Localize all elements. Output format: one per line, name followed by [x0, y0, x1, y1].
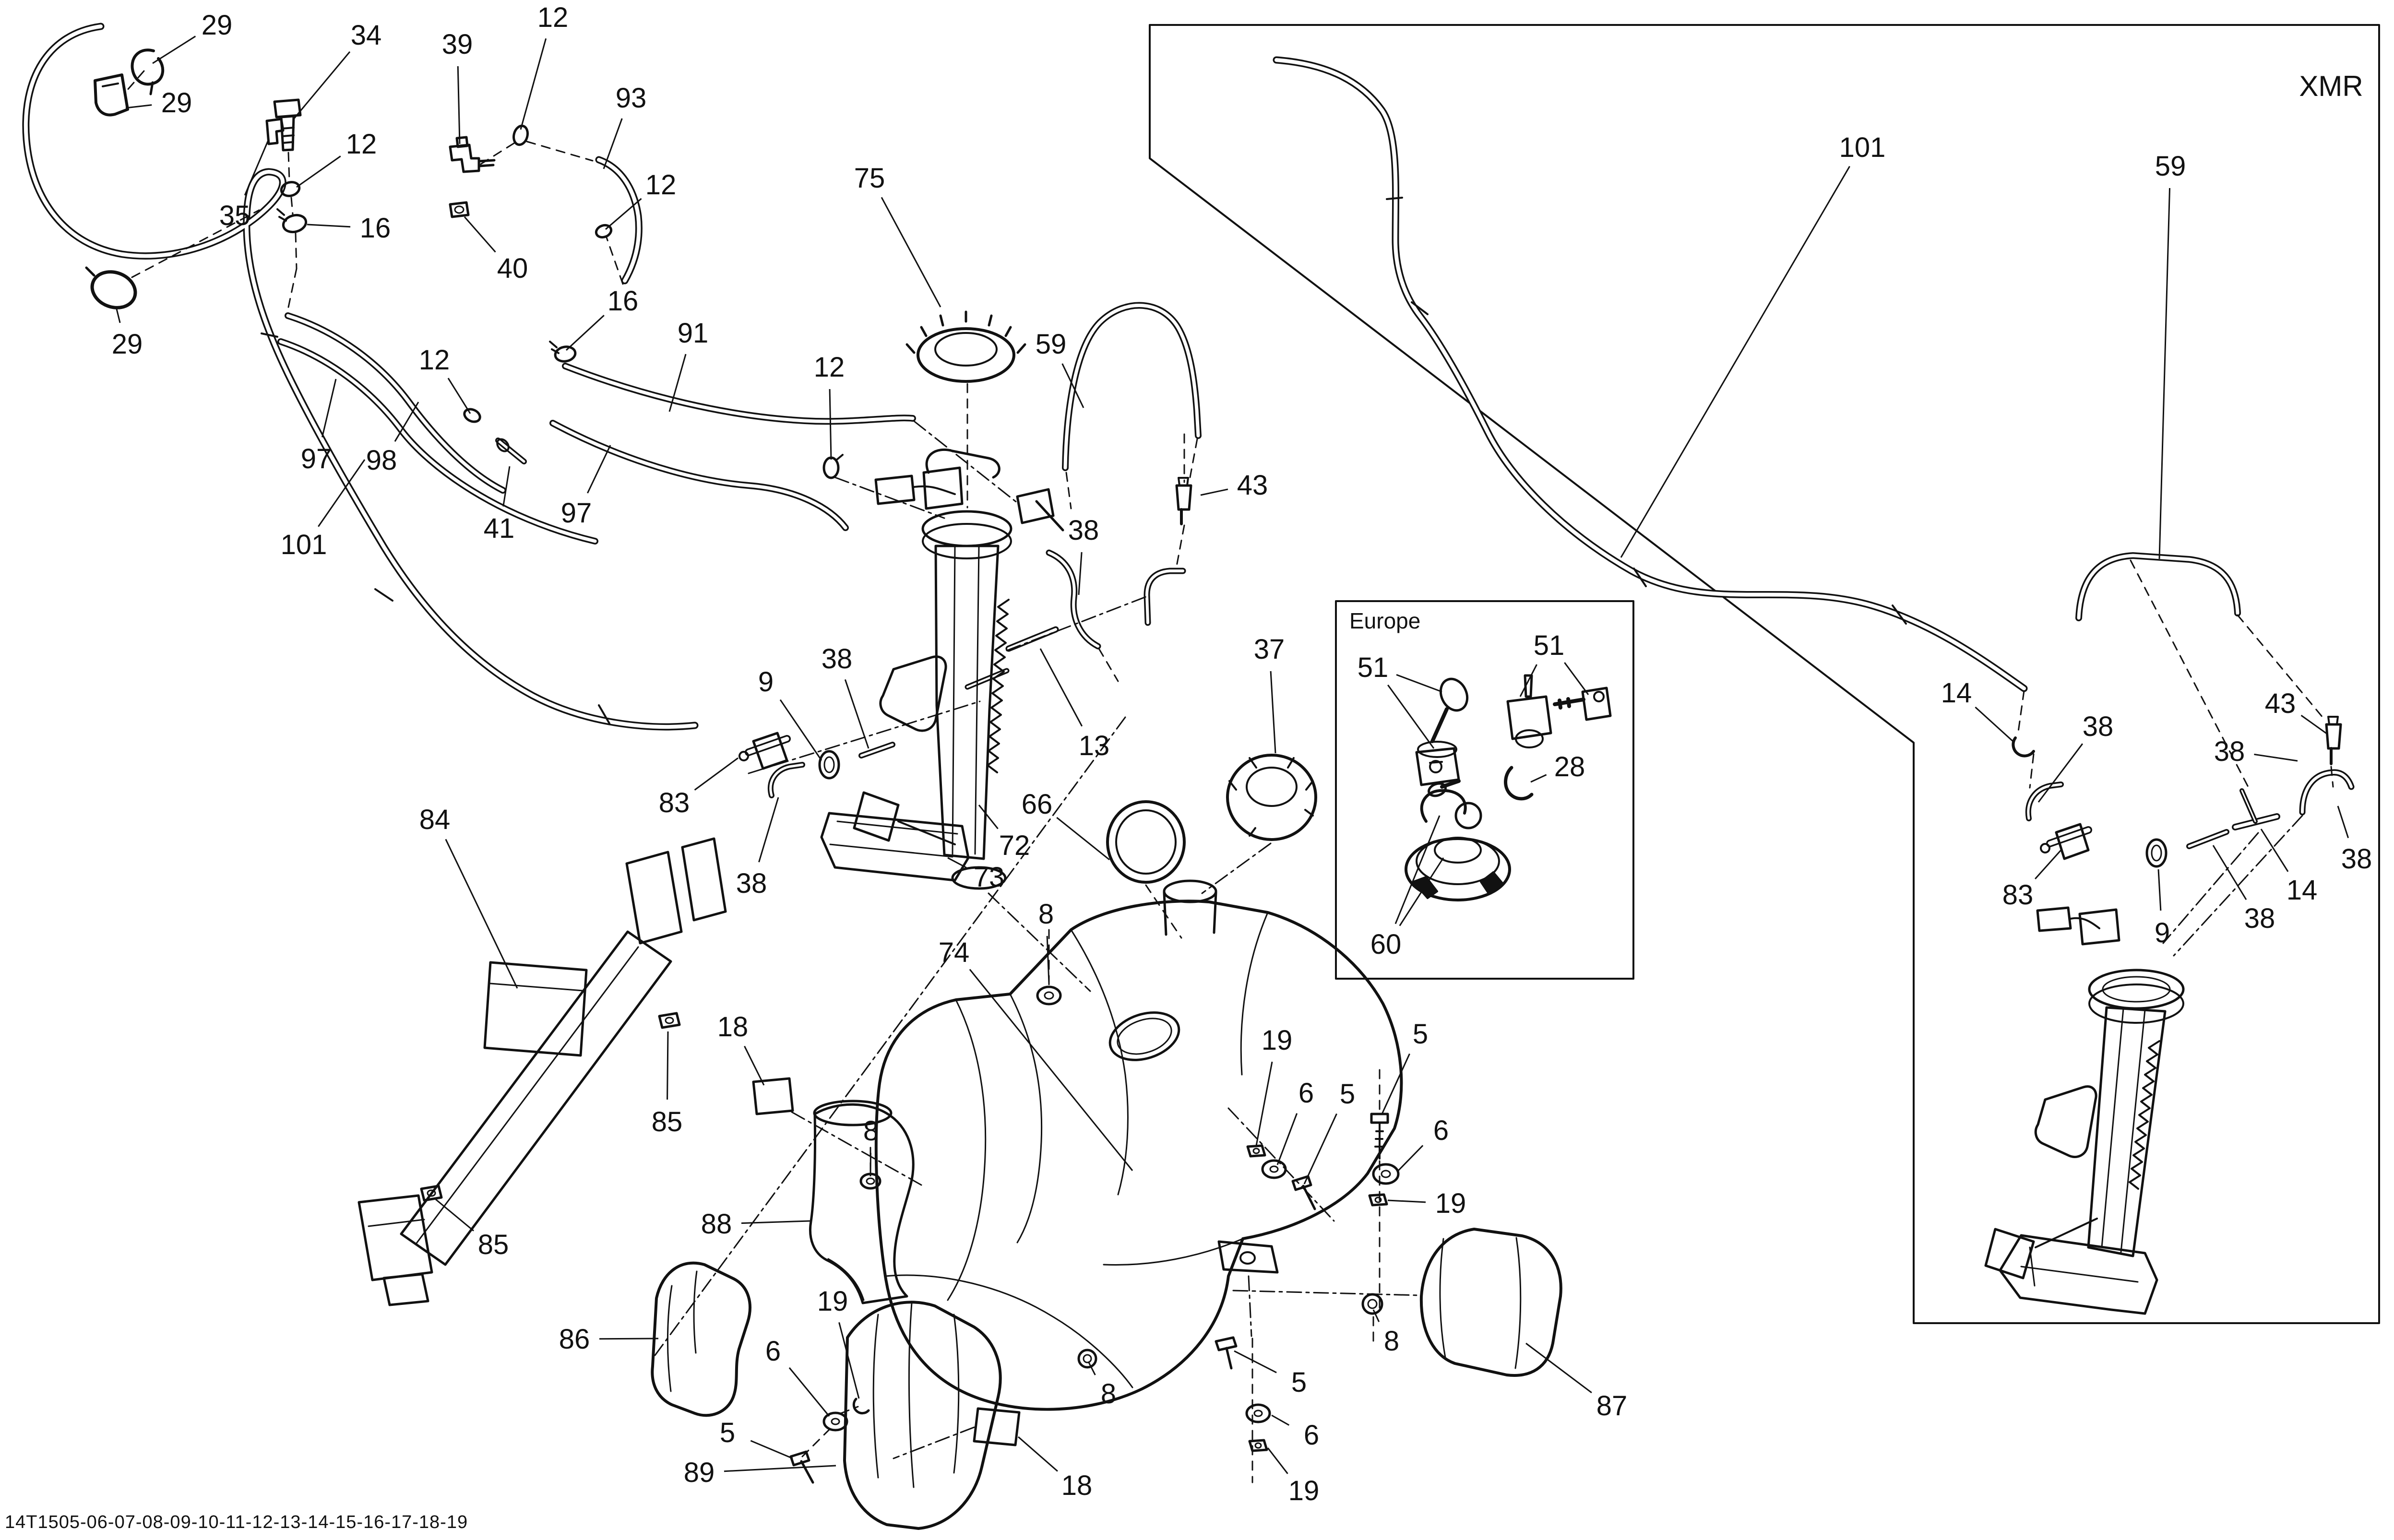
callout-86-leader: [599, 1339, 658, 1339]
sensor-83b-tip: [2041, 844, 2049, 853]
callout-18-label: 18: [717, 1011, 749, 1042]
callout-13-leader: [1040, 649, 1082, 726]
dash-39-12a: [481, 143, 514, 164]
callout-51-label: 51: [1358, 652, 1389, 683]
callout-16-label: 16: [360, 213, 391, 244]
callout-59-leader: [2159, 188, 2170, 559]
washer-8a-in: [867, 1178, 874, 1184]
callout-6-leader: [789, 1368, 829, 1416]
tank-neck-top: [1164, 881, 1216, 902]
callout-97-leader: [587, 445, 610, 493]
callout-89-leader: [724, 1466, 836, 1471]
clip-29b-inner: [103, 83, 118, 86]
callout-66-leader: [1057, 817, 1109, 860]
callout-6-label: 6: [1304, 1420, 1319, 1451]
callout-93-leader: [604, 118, 622, 169]
bolt-5c-shank: [801, 1461, 813, 1482]
callout-6-label: 6: [1298, 1078, 1314, 1109]
europe-region-label: Europe: [1349, 608, 1420, 633]
callout-14-label: 14: [2287, 875, 2318, 906]
tank-hole-inner: [1113, 1012, 1176, 1061]
callout-60-label: 60: [1370, 929, 1402, 960]
cap-37-notches: [1229, 758, 1313, 836]
bracket-84-plate1: [627, 852, 681, 943]
callout-12-label: 12: [419, 344, 450, 376]
callout-34-leader: [294, 52, 350, 119]
fitting-39: [450, 145, 479, 172]
tank-hole-outer: [1104, 1004, 1185, 1068]
rp-connector: [2080, 910, 2119, 944]
clip-35: [267, 119, 283, 144]
callout-9-leader: [2158, 869, 2161, 911]
callout-85-leader: [436, 1199, 474, 1231]
callout-8-label: 8: [863, 1115, 879, 1147]
bolt-5b-shank: [1375, 1123, 1383, 1159]
shield-86-l1: [667, 1286, 672, 1391]
callout-38-leader: [1079, 552, 1082, 595]
shield-89-l3: [954, 1315, 959, 1473]
callout-84-leader: [446, 839, 517, 988]
dash-59a-2: [1190, 439, 1197, 477]
callout-91-label: 91: [678, 318, 709, 349]
callout-29-label: 29: [202, 10, 233, 41]
ring-75-inner: [935, 333, 997, 366]
nut-85a-hole: [666, 1018, 673, 1023]
shield-89-l2: [909, 1303, 914, 1487]
callout-59-label: 59: [1036, 329, 1067, 360]
cover-87-l2: [1515, 1238, 1521, 1368]
callout-19-leader: [1256, 1062, 1272, 1146]
nut-19a-hole: [1253, 1149, 1259, 1153]
callout-51-leader: [1520, 664, 1537, 697]
callout-34-label: 34: [351, 20, 382, 51]
sled-73-lines: [830, 821, 957, 857]
clip-29c: [87, 266, 140, 313]
callout-38-leader: [2038, 744, 2083, 802]
callout-73-leader: [948, 858, 966, 868]
cap-60-ring: [1456, 803, 1481, 828]
bolt-5a-shank: [1303, 1186, 1315, 1209]
grommet-8d-in: [1084, 1355, 1091, 1362]
callout-74-leader: [970, 970, 1132, 1171]
callout-38-label: 38: [2341, 843, 2372, 875]
callout-29-label: 29: [112, 329, 143, 360]
grommet-8c-in: [1368, 1300, 1377, 1308]
callout-35-label: 35: [219, 200, 250, 231]
callout-75-leader: [881, 197, 941, 307]
callout-93-label: 93: [616, 83, 647, 114]
callout-43-label: 43: [2265, 688, 2296, 719]
callout-85-leader: [667, 1031, 668, 1100]
valve-43b: [2326, 724, 2341, 748]
sensor-83a-tip: [739, 752, 748, 760]
key-51a-blade: [1432, 709, 1447, 741]
callout-16-label: 16: [607, 285, 639, 317]
callout-14-label: 14: [1941, 677, 1972, 709]
callout-14-leader: [1975, 707, 2014, 743]
key-51b-blade: [1555, 699, 1584, 708]
callout-29-leader: [126, 105, 152, 108]
tank-facet-4: [948, 1000, 986, 1300]
bolt-5d-shank: [1227, 1348, 1231, 1368]
callout-16-leader: [566, 315, 604, 350]
bracket-84-boxlid: [490, 983, 583, 991]
grommet-9a-in: [824, 757, 834, 772]
callout-29-label: 29: [161, 87, 192, 118]
callout-8-label: 8: [1038, 899, 1054, 930]
callout-60-leader: [1395, 816, 1440, 924]
elbow-38-right: [2302, 772, 2351, 812]
nut-19b: [1370, 1195, 1387, 1205]
washer-6d: [1247, 1405, 1270, 1422]
callout-85-label: 85: [478, 1229, 509, 1260]
callout-89-label: 89: [684, 1457, 715, 1488]
stack-dash-1: [288, 153, 289, 180]
callout-51-label: 51: [1534, 630, 1565, 661]
callout-28-leader: [1531, 775, 1547, 782]
callout-43-leader: [1201, 489, 1228, 495]
parts-diagram-page: 2934123993291235121640299798124110116911…: [0, 0, 2394, 1540]
callout-38-label: 38: [2083, 711, 2114, 742]
dashdot-flange-down: [1249, 1276, 1251, 1336]
tank-facet-1: [1010, 994, 1042, 1243]
dashdot-87: [1233, 1291, 1419, 1295]
callout-9-label: 9: [2155, 917, 2170, 948]
callout-8-label: 8: [1384, 1326, 1399, 1357]
cap-37-inner: [1247, 768, 1297, 806]
dashdot-18b: [893, 1427, 974, 1458]
clamp-12d: [463, 407, 482, 424]
callout-19-leader: [1268, 1448, 1287, 1474]
callout-29-leader: [116, 307, 120, 323]
dashdot-12e-pump: [835, 477, 944, 518]
key-51b-hole: [1594, 692, 1604, 701]
pump-connector-2: [927, 450, 999, 477]
callout-38-label: 38: [736, 868, 767, 899]
callout-38-leader: [759, 797, 778, 862]
pump-body: [936, 546, 998, 859]
callout-37-leader: [1271, 671, 1275, 753]
pump-connector-1: [924, 468, 962, 509]
clamp-12e: [824, 458, 838, 478]
sticker-18b: [974, 1409, 1019, 1445]
callout-12-label: 12: [814, 352, 845, 383]
hose-91-core: [565, 366, 913, 421]
hose-59-right-core: [2079, 556, 2238, 618]
washer-6b-in: [1382, 1171, 1390, 1177]
pump-screw: [1036, 501, 1063, 530]
callout-12-label: 12: [346, 129, 377, 160]
hose-101-right-core: [1276, 60, 2024, 688]
callout-51-leader-2: [1564, 663, 1588, 695]
callout-5-label: 5: [720, 1417, 735, 1448]
rp-side-cyl: [2036, 1087, 2096, 1157]
callout-38-leader: [2254, 754, 2298, 761]
stack-dash-2: [291, 198, 293, 214]
clip-19c: [854, 1399, 869, 1413]
bolt-5c-head: [791, 1452, 809, 1465]
nut-85a: [659, 1013, 679, 1028]
sled-73: [822, 813, 968, 880]
callout-19-leader: [1388, 1200, 1426, 1202]
fitting-39-top: [457, 137, 467, 147]
callout-12-leader: [521, 38, 546, 130]
bracket-84-bar: [401, 932, 671, 1265]
washer-6c-in: [832, 1419, 839, 1424]
dash-59a-1: [1066, 473, 1071, 509]
clamp-40-hole: [455, 206, 464, 213]
callout-12-leader: [297, 156, 341, 187]
callout-87-label: 87: [1596, 1390, 1628, 1422]
nut-19a: [1248, 1146, 1265, 1156]
tube-38-right-core: [2189, 832, 2227, 846]
diagram-artwork-layer: [26, 25, 2379, 1528]
callout-18-leader: [744, 1046, 764, 1085]
duct-88: [810, 1104, 913, 1303]
callout-6-leader: [1397, 1146, 1423, 1172]
tube-38-mid-core: [861, 745, 893, 756]
washer-8b: [1037, 987, 1060, 1004]
dash-93-12b: [607, 237, 623, 284]
shield-89-l1: [873, 1315, 878, 1478]
grommet-9a: [820, 751, 839, 778]
washer-6c: [824, 1413, 847, 1430]
clip-28: [1506, 768, 1532, 799]
callout-73-label: 73: [974, 862, 1005, 893]
callout-72-leader: [979, 805, 998, 829]
callout-6-leader: [1272, 1415, 1289, 1425]
callout-19-label: 19: [1435, 1188, 1466, 1219]
clip-29a: [132, 50, 163, 84]
key-51a-head: [1436, 675, 1472, 715]
callout-74-label: 74: [939, 937, 970, 968]
callout-88-leader: [741, 1221, 810, 1223]
dash-12a-93: [527, 142, 593, 161]
callout-5-leader: [1304, 1114, 1337, 1184]
callout-5-leader: [1234, 1351, 1276, 1373]
callout-35-leader: [245, 139, 269, 195]
callout-19-label: 19: [1262, 1025, 1293, 1056]
washer-8b-in: [1045, 992, 1053, 999]
callout-38-label: 38: [1068, 515, 1099, 546]
callout-40-leader: [465, 217, 495, 252]
callout-101-label: 101: [1839, 132, 1886, 163]
callout-84-label: 84: [419, 804, 451, 835]
callout-51-leader-2: [1388, 685, 1434, 748]
callout-85-label: 85: [652, 1106, 683, 1137]
callout-83-leader: [695, 758, 738, 790]
callout-86-label: 86: [559, 1324, 590, 1355]
pump-wire: [914, 486, 955, 494]
tank-facet-5: [885, 1275, 1132, 1387]
valve-43a: [1177, 486, 1191, 509]
tank-outline: [876, 901, 1402, 1409]
clip-14a: [2013, 738, 2034, 756]
callout-88-label: 88: [701, 1208, 732, 1240]
washer-6d-in: [1254, 1410, 1262, 1416]
elbow-38-left-xmr: [2028, 784, 2061, 818]
dashdot-flange-axis: [1228, 1108, 1334, 1221]
callout-6-leader: [1277, 1114, 1297, 1165]
tube-13-core: [1009, 629, 1056, 649]
callout-12-leader: [830, 389, 831, 460]
washer-6a-in: [1270, 1166, 1278, 1172]
callout-18-leader: [1018, 1437, 1058, 1471]
pump-body-lines: [953, 547, 979, 854]
callout-101-leader: [1621, 166, 1850, 557]
y-fitting-branch-core: [2242, 791, 2255, 821]
grommet-9b: [2147, 840, 2166, 866]
shield-86-l2: [694, 1271, 697, 1353]
callout-66-label: 66: [1022, 789, 1053, 820]
callout-101-label: 101: [281, 529, 327, 560]
sheet-part-number: 14T1505-06-07-08-09-10-11-12-13-14-15-16…: [5, 1512, 468, 1532]
callout-83-label: 83: [2002, 879, 2034, 911]
bracket-84-plate2: [682, 839, 726, 920]
cap-60-mid: [1417, 838, 1499, 884]
clip-29b: [95, 75, 128, 115]
tank-flange: [1219, 1242, 1277, 1272]
callout-9-leader: [780, 700, 822, 760]
clamp-16b: [554, 345, 577, 363]
callout-43-leader: [2301, 715, 2327, 734]
callout-40-label: 40: [497, 253, 528, 284]
callout-6-label: 6: [765, 1336, 781, 1367]
callout-13-label: 13: [1079, 730, 1110, 761]
callout-97-label: 97: [561, 498, 592, 529]
fitting-34-b: [281, 116, 294, 150]
callout-37-label: 37: [1254, 634, 1285, 665]
nut-19d-hole: [1255, 1443, 1261, 1448]
grommet-9b-in: [2152, 845, 2161, 861]
clamp-40: [450, 202, 468, 217]
callout-83-leader: [2035, 850, 2061, 879]
tank-neck-r: [1214, 892, 1216, 933]
elbow-38-low: [771, 765, 802, 795]
callout-38-label: 38: [2244, 903, 2275, 934]
xmr-box-border: [1150, 25, 2379, 1323]
callout-39-label: 39: [442, 29, 473, 60]
xmr-region-label: XMR: [2299, 70, 2363, 102]
clamp-16a: [281, 213, 308, 234]
cover-87-l1: [1440, 1239, 1445, 1358]
gasket-66-outer: [1108, 802, 1184, 882]
callout-12-label: 12: [645, 169, 677, 201]
bracket-84-endline: [369, 1220, 424, 1226]
clamp-12e-tab: [837, 455, 843, 460]
callout-5-label: 5: [1340, 1078, 1355, 1110]
callout-97-label: 97: [301, 443, 332, 474]
callout-41-leader: [503, 466, 510, 507]
callout-43-label: 43: [1237, 470, 1268, 501]
hose-101-right: [1276, 60, 2024, 688]
dash-14a-elbow: [2030, 754, 2034, 788]
dash-43a-down: [1177, 525, 1184, 566]
callout-28-label: 28: [1554, 751, 1585, 782]
callout-38-leader: [845, 679, 869, 748]
callout-6-label: 6: [1433, 1115, 1449, 1146]
callout-5-leader: [1382, 1054, 1410, 1114]
callout-5-label: 5: [1291, 1367, 1307, 1398]
callout-19-label: 19: [817, 1286, 848, 1317]
rp-flange-in: [2103, 977, 2170, 1002]
callout-59-label: 59: [2155, 151, 2186, 182]
gasket-66-inner: [1116, 810, 1176, 874]
cap-60-top: [1435, 838, 1481, 863]
callout-51-leader: [1396, 675, 1442, 692]
callout-8-leader: [1047, 936, 1049, 983]
callout-29-leader: [153, 36, 195, 63]
cyl-51b: [1508, 697, 1551, 739]
callout-12-label: 12: [537, 2, 569, 33]
callout-75-label: 75: [854, 163, 885, 194]
callout-5-label: 5: [1413, 1019, 1428, 1050]
callout-72-label: 72: [999, 830, 1030, 861]
ring-75-outer: [918, 329, 1014, 381]
dash-38-13: [1099, 649, 1118, 681]
callout-87-leader: [1526, 1343, 1592, 1393]
callout-38-leader: [2338, 806, 2348, 838]
callout-5-leader: [750, 1441, 793, 1458]
tank-flange-hole: [1240, 1252, 1255, 1264]
rp-plug: [2037, 908, 2071, 931]
clip-29c-tab: [86, 268, 94, 275]
rp-wire: [2071, 918, 2099, 928]
hose-38-L-core: [1147, 571, 1183, 623]
callout-39-leader: [458, 66, 460, 144]
bolt-5a-head: [1293, 1176, 1311, 1190]
callout-97-leader: [322, 379, 336, 437]
tank-neck-l: [1164, 892, 1166, 935]
dashdot-91-pump: [914, 421, 1017, 503]
callout-38-label: 38: [2214, 736, 2245, 767]
callout-41-label: 41: [484, 513, 515, 544]
dash-101b-14a: [2018, 691, 2024, 735]
pump-bracket-top: [1017, 489, 1053, 523]
callout-38-label: 38: [822, 643, 853, 675]
callout-18-label: 18: [1061, 1470, 1093, 1501]
exploded-parts-diagram: 2934123993291235121640299798124110116911…: [0, 0, 2394, 1540]
bolt-5b-head: [1371, 1114, 1388, 1123]
stack-dash-4: [288, 269, 297, 309]
hose-59-center-core: [1065, 306, 1198, 468]
sticker-18a: [753, 1078, 793, 1114]
callout-83-label: 83: [659, 787, 690, 818]
washer-6b: [1373, 1164, 1398, 1184]
callout-16-leader: [307, 225, 350, 227]
callout-9-label: 9: [758, 666, 774, 698]
stack-dash-3: [296, 233, 297, 269]
callout-98-label: 98: [366, 445, 397, 476]
grommet-8d: [1079, 1350, 1096, 1367]
callout-8-label: 8: [1101, 1378, 1116, 1410]
bracket-84-barline: [416, 947, 638, 1244]
washer-6a: [1263, 1161, 1286, 1178]
dashdot-18a: [792, 1112, 921, 1185]
callout-19-label: 19: [1288, 1475, 1320, 1506]
callout-12-leader: [448, 378, 470, 414]
